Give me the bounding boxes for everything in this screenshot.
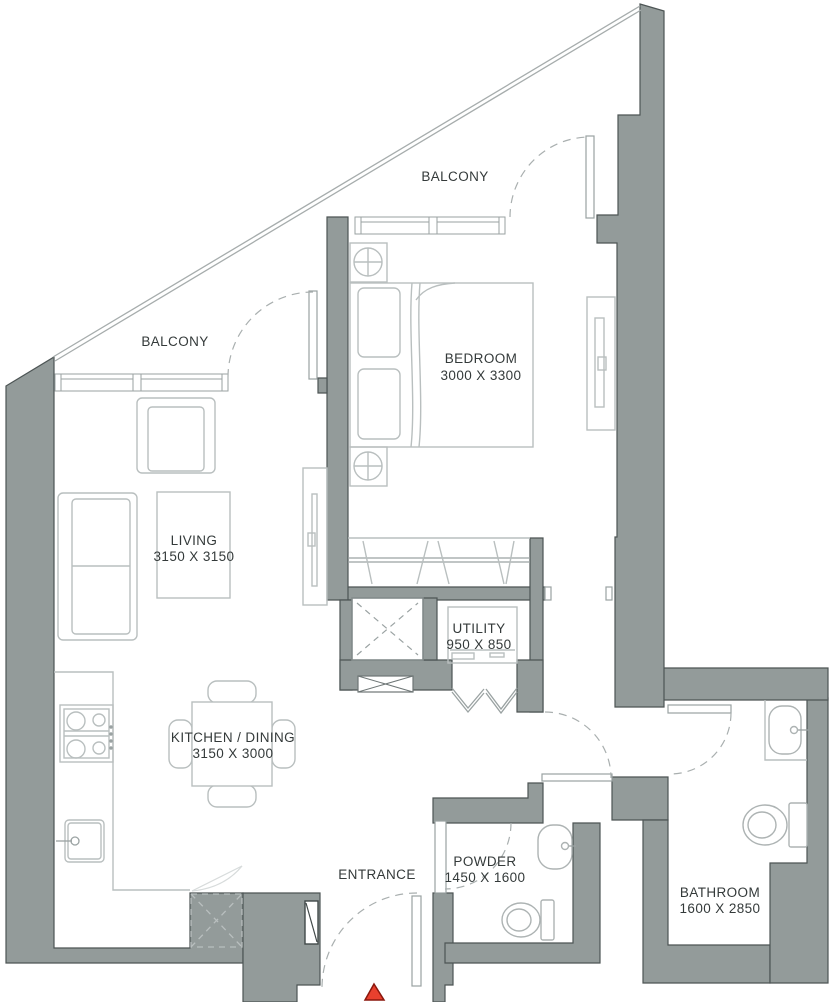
powder-sink-icon <box>538 825 576 869</box>
blanket-corner <box>416 283 455 300</box>
living-furniture <box>58 398 327 640</box>
door-living-balcony <box>228 291 317 379</box>
label-powder-dims: 1450 X 1600 <box>445 870 526 885</box>
wall-bathroom-top <box>650 668 828 700</box>
label-living-dims: 3150 X 3150 <box>154 549 235 564</box>
stove-icon <box>60 705 113 762</box>
wall-powder-right-bottom <box>445 823 600 963</box>
dining-chair <box>208 681 256 703</box>
entry-marker-icon <box>365 984 384 1000</box>
vent-grille <box>358 676 413 692</box>
door-leaf <box>668 705 731 713</box>
floor-plan-drawing: BALCONY BALCONY BEDROOM 3000 X 3300 LIVI… <box>0 0 831 1002</box>
door-bathroom <box>668 705 731 774</box>
door-bedroom-balcony <box>510 136 594 218</box>
label-balcony-left: BALCONY <box>141 334 208 349</box>
label-bedroom-name: BEDROOM <box>445 351 518 366</box>
wall-right-outer <box>597 4 664 707</box>
kitchen-sink-icon <box>56 820 104 862</box>
door-utility-bifold <box>452 688 517 713</box>
door-entry <box>305 893 421 988</box>
wall-balcony-foot <box>318 378 327 393</box>
door-swing-arc <box>322 893 417 988</box>
label-utility-dims: 950 X 850 <box>446 637 511 652</box>
pillow <box>358 288 400 357</box>
door-bedroom-jambs <box>545 587 612 600</box>
label-bedroom-dims: 3000 X 3300 <box>441 368 522 383</box>
floor-plan-page: BALCONY BALCONY BEDROOM 3000 X 3300 LIVI… <box>0 0 831 1002</box>
label-bathroom-dims: 1600 X 2850 <box>680 901 761 916</box>
wall-living-bedroom <box>327 217 348 600</box>
door-hallway <box>542 712 612 781</box>
bathroom-sink-icon <box>769 706 809 754</box>
wall-utility-jamb-right <box>517 660 543 712</box>
label-living-name: LIVING <box>171 533 218 548</box>
bedroom-furniture <box>348 243 615 584</box>
bathroom-toilet-icon <box>743 803 807 847</box>
door-leaf <box>542 774 612 781</box>
bathroom-fittings <box>743 700 809 847</box>
window-living-balcony <box>55 374 228 391</box>
blanket-fold <box>411 283 413 447</box>
label-powder-name: POWDER <box>453 854 516 869</box>
window-bedroom-balcony <box>355 217 505 234</box>
label-balcony-top: BALCONY <box>421 169 488 184</box>
wall-powder-top <box>433 783 543 823</box>
pillow <box>358 369 400 439</box>
powder-toilet-icon <box>502 900 554 940</box>
door-leaf <box>412 896 421 986</box>
label-bathroom-name: BATHROOM <box>680 885 760 900</box>
wall-utility-left <box>423 598 437 660</box>
label-kitchen-dims: 3150 X 3000 <box>193 746 274 761</box>
wardrobe <box>587 297 615 430</box>
label-kitchen-name: KITCHEN / DINING <box>171 730 295 745</box>
door-swing-arc <box>545 712 611 778</box>
label-entrance: ENTRANCE <box>338 867 415 882</box>
door-leaf <box>309 291 317 379</box>
door-swing-arc <box>670 713 731 774</box>
door-swing-arc <box>510 137 590 217</box>
door-kitchen-ghost <box>192 866 242 891</box>
door-leaf <box>586 136 594 218</box>
duct-shaft-utility <box>352 598 423 660</box>
wardrobe-knob <box>598 357 606 370</box>
wall-left-and-bottom <box>6 357 243 963</box>
door-swing-arc <box>228 292 313 377</box>
kitchen-fittings <box>54 672 295 890</box>
wall-hall-block <box>612 777 668 820</box>
blanket-fold <box>419 283 421 447</box>
dining-chair <box>208 785 256 807</box>
label-utility-name: UTILITY <box>452 621 505 636</box>
wardrobe-rail <box>595 318 604 407</box>
